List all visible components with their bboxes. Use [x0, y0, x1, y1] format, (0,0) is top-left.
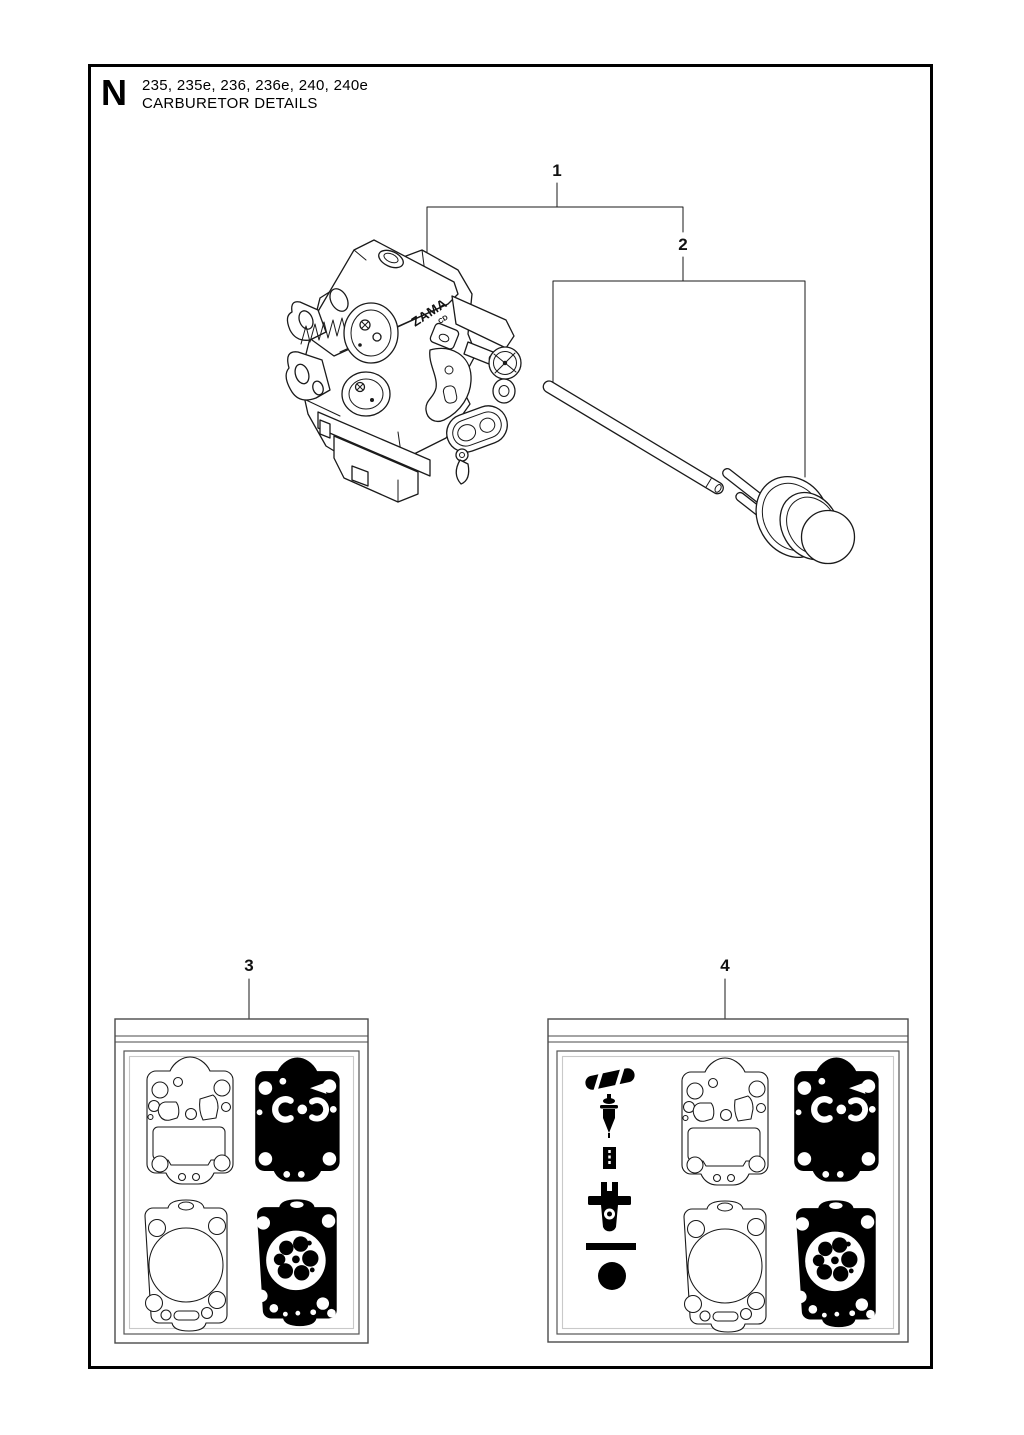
kit4-pump-diaphragm: [794, 1201, 875, 1327]
catalog-page: N 235, 235e, 236, 236e, 240, 240e CARBUR…: [0, 0, 1024, 1435]
fuel-line: [541, 379, 725, 496]
item2-box: [553, 281, 805, 477]
parts-diagram: ZAMA CD: [0, 0, 1024, 1435]
kit4-metering-gasket: [682, 1058, 768, 1185]
callout-4: 4: [720, 956, 730, 975]
kit3-metering-diaphragm: [256, 1058, 339, 1181]
kit3-metering-gasket: [147, 1057, 233, 1184]
gasket-kit-3: [115, 1019, 368, 1343]
callout-1: 1: [552, 161, 561, 180]
flange-fastener: [456, 449, 469, 484]
metering-cover: [344, 303, 398, 363]
throttle-swivel-disc: [489, 347, 521, 403]
kit3-pump-gasket: [145, 1200, 227, 1331]
kit4-metering-diaphragm: [795, 1058, 878, 1181]
pin-part: [586, 1243, 636, 1250]
kit3-pump-diaphragm: [255, 1200, 336, 1326]
callout-3: 3: [244, 956, 253, 975]
carburetor-assembly: ZAMA CD: [286, 240, 521, 502]
pump-cover: [342, 372, 390, 416]
sleeve-part: [603, 1147, 616, 1169]
welch-plug-part: [598, 1262, 626, 1290]
gasket-kit-4: [548, 1019, 908, 1342]
primer-bulb: [742, 463, 855, 571]
callout-2: 2: [678, 235, 687, 254]
primer-bulb-assembly: [541, 379, 854, 571]
kit4-pump-gasket: [684, 1201, 766, 1332]
